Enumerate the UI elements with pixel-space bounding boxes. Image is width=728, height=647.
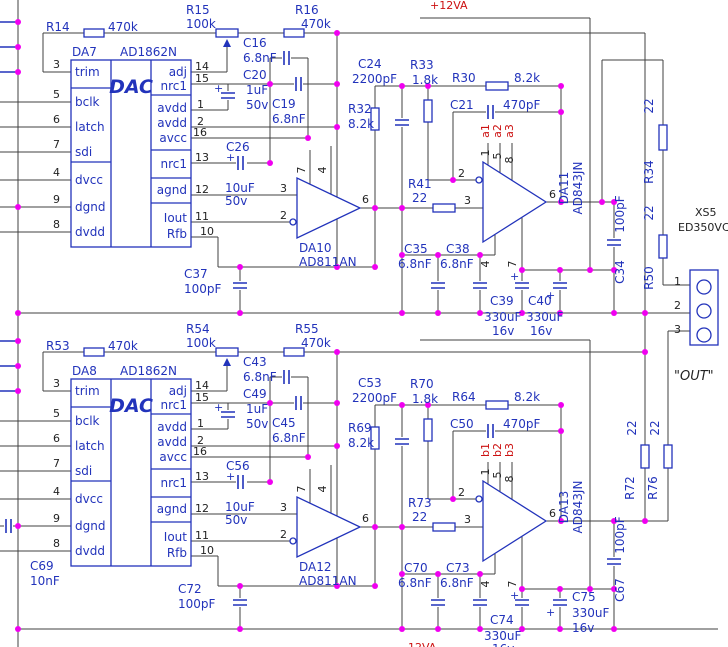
da8-pin-trim: trim xyxy=(75,384,100,398)
da10-num-6: 6 xyxy=(362,193,369,206)
da8-pin-nrc1a: nrc1 xyxy=(160,398,187,412)
r32-value: 8.2k xyxy=(348,117,374,131)
c34-ref: C34 xyxy=(613,260,627,284)
da7-num-4: 4 xyxy=(53,166,60,179)
r64-ref: R64 xyxy=(452,390,476,404)
r14-ref: R14 xyxy=(46,20,70,34)
c19-value: 6.8nF xyxy=(272,112,306,126)
da8-pin-sdi: sdi xyxy=(75,464,92,478)
c43-ref: C43 xyxy=(243,355,267,369)
da8-pin-adj: adj xyxy=(169,384,187,398)
r14-value: 470k xyxy=(108,20,138,34)
da8-num-10: 10 xyxy=(200,544,214,557)
da8-pin-iout: Iout xyxy=(164,530,187,544)
da12-num-4: 4 xyxy=(316,486,329,493)
c21-ref: C21 xyxy=(450,98,474,112)
c75-polarity: + xyxy=(546,606,555,619)
da7-num-12: 12 xyxy=(195,183,209,196)
da7-pin-rfb: Rfb xyxy=(167,227,187,241)
c39-polarity: + xyxy=(510,270,519,283)
da10-num-2: 2 xyxy=(280,209,287,222)
c50-value: 470pF xyxy=(503,417,541,431)
da12-num-6: 6 xyxy=(362,512,369,525)
c37-ref: C37 xyxy=(184,267,208,281)
da7-pin-trim: trim xyxy=(75,65,100,79)
da11-inverting-bubble xyxy=(476,177,482,183)
da12-num-7: 7 xyxy=(295,486,308,493)
r72-ref: R72 xyxy=(623,476,637,500)
c39-ref: C39 xyxy=(490,294,514,308)
da13-triangle xyxy=(483,481,546,561)
opamp-da10 xyxy=(290,178,360,238)
da12-num-3: 3 xyxy=(280,501,287,514)
c39-value2: 16v xyxy=(492,324,514,338)
da13-num-4: 4 xyxy=(479,581,492,588)
c75-value: 330uF xyxy=(572,606,610,620)
da12-ref: DA12 xyxy=(299,560,332,574)
da11-num-7: 7 xyxy=(506,261,519,268)
r76-body xyxy=(664,445,672,468)
c19-ref: C19 xyxy=(272,97,296,111)
da13-ref: DA13 xyxy=(557,491,571,524)
c70-value: 6.8nF xyxy=(398,576,432,590)
da8-num-3: 3 xyxy=(53,377,60,390)
da11-num-8: 8 xyxy=(503,157,516,164)
r30-value: 8.2k xyxy=(514,71,540,85)
da11-tag-a3: a3 xyxy=(503,124,516,138)
r54-ref: R54 xyxy=(186,322,210,336)
da7-pin-sdi: sdi xyxy=(75,145,92,159)
da8-pin-agnd: agnd xyxy=(157,502,187,516)
c74-ref: C74 xyxy=(490,613,514,627)
xs5-pin1-circle xyxy=(697,280,711,294)
r53-body xyxy=(84,348,104,356)
r50-value: 22 xyxy=(642,205,656,220)
da8-num-1: 1 xyxy=(197,417,204,430)
power-label-neg: -12VA xyxy=(404,641,437,647)
c53-ref: C53 xyxy=(358,376,382,390)
c49-polarity: + xyxy=(214,401,223,414)
c56-value: 10uF xyxy=(225,500,255,514)
da13-num-3: 3 xyxy=(464,513,471,526)
da8-num-12: 12 xyxy=(195,502,209,515)
da11-ref: DA11 xyxy=(557,172,571,205)
xs5-num-3: 3 xyxy=(674,323,681,336)
da7-num-10: 10 xyxy=(200,225,214,238)
power-label-pos: +12VA xyxy=(430,0,468,12)
da10-ref: DA10 xyxy=(299,241,332,255)
opamp-da11 xyxy=(476,162,546,242)
da10-num-7: 7 xyxy=(295,167,308,174)
r50-ref: R50 xyxy=(642,266,656,290)
r76-ref: R76 xyxy=(646,476,660,500)
opamp-da12 xyxy=(290,497,360,557)
r73-ref: R73 xyxy=(408,496,432,510)
c73-ref: C73 xyxy=(446,561,470,575)
da13-num-2: 2 xyxy=(458,486,465,499)
da8-num-9: 9 xyxy=(53,512,60,525)
c26-value: 10uF xyxy=(225,181,255,195)
da7-pin-dvcc: dvcc xyxy=(75,173,103,187)
r34-body xyxy=(659,125,667,150)
opamp-da13 xyxy=(476,481,546,561)
r30-body xyxy=(486,82,508,90)
da8-type: DAC xyxy=(109,395,153,417)
da10-num-3: 3 xyxy=(280,182,287,195)
r16-value: 470k xyxy=(301,17,331,31)
da8-pin-bclk: bclk xyxy=(75,414,100,428)
c49-value: 1uF xyxy=(246,402,268,416)
da11-part: AD843JN xyxy=(571,162,585,215)
da7-pin-avdd1: avdd xyxy=(157,101,187,115)
r72-value: 22 xyxy=(625,420,639,435)
da12-num-2: 2 xyxy=(280,528,287,541)
c20-polarity: + xyxy=(214,82,223,95)
r16-ref: R16 xyxy=(295,3,319,17)
r34-ref: R34 xyxy=(642,160,656,184)
xs5-ref: XS5 xyxy=(695,206,717,219)
r54-body xyxy=(216,348,238,356)
da8-pin-avdd1: avdd xyxy=(157,420,187,434)
r33-value: 1.8k xyxy=(412,73,438,87)
da13-part: AD843JN xyxy=(571,481,585,534)
da7-num-15: 15 xyxy=(195,72,209,85)
r72-body xyxy=(641,445,649,468)
schematic-page: DAC DAC xyxy=(0,0,728,647)
da7-num-7: 7 xyxy=(53,138,60,151)
r41-ref: R41 xyxy=(408,177,432,191)
c26-polarity: + xyxy=(226,151,235,164)
r33-body xyxy=(424,100,432,122)
r53-value: 470k xyxy=(108,339,138,353)
da8-pin-dgnd: dgnd xyxy=(75,519,105,533)
da13-tag-b3: b3 xyxy=(503,443,516,457)
da7-num-3: 3 xyxy=(53,58,60,71)
da8-pin-avdd2: avdd xyxy=(157,435,187,449)
r15-value: 100k xyxy=(186,17,216,31)
da7-pin-nrc1a: nrc1 xyxy=(160,79,187,93)
da7-pin-avcc: avcc xyxy=(159,131,187,145)
c40-value: 330uF xyxy=(526,310,564,324)
c20-value: 1uF xyxy=(246,83,268,97)
r55-value: 470k xyxy=(301,336,331,350)
c67-ref: C67 xyxy=(613,578,627,602)
da8-num-8: 8 xyxy=(53,537,60,550)
da7-num-1: 1 xyxy=(197,98,204,111)
c38-value: 6.8nF xyxy=(440,257,474,271)
da10-triangle xyxy=(297,178,360,238)
da11-triangle xyxy=(483,162,546,242)
da8-num-16: 16 xyxy=(193,445,207,458)
da8-pin-rfb: Rfb xyxy=(167,546,187,560)
da7-num-11: 11 xyxy=(195,210,209,223)
c39-value: 330uF xyxy=(484,310,522,324)
c38-ref: C38 xyxy=(446,242,470,256)
da8-num-5: 5 xyxy=(53,407,60,420)
r32-ref: R32 xyxy=(348,102,372,116)
da7-num-8: 8 xyxy=(53,218,60,231)
da7-pin-agnd: agnd xyxy=(157,183,187,197)
r64-value: 8.2k xyxy=(514,390,540,404)
da12-triangle xyxy=(297,497,360,557)
c24-value: 2200pF xyxy=(352,72,397,86)
r34-value: 22 xyxy=(642,98,656,113)
c35-value: 6.8nF xyxy=(398,257,432,271)
r64-body xyxy=(486,401,508,409)
c56-polarity: + xyxy=(226,470,235,483)
da8-pin-nrc1b: nrc1 xyxy=(160,476,187,490)
da8-pin-avcc: avcc xyxy=(159,450,187,464)
r15-ref: R15 xyxy=(186,3,210,17)
xs5-num-2: 2 xyxy=(674,299,681,312)
da7-pin-avdd2: avdd xyxy=(157,116,187,130)
r30-ref: R30 xyxy=(452,71,476,85)
c74-polarity: + xyxy=(510,589,519,602)
r55-ref: R55 xyxy=(295,322,319,336)
c21-value: 470pF xyxy=(503,98,541,112)
da8-num-6: 6 xyxy=(53,432,60,445)
r54-wiper-arrow xyxy=(223,358,231,366)
da7-pin-adj: adj xyxy=(169,65,187,79)
da13-num-7: 7 xyxy=(506,581,519,588)
c74-value: 330uF xyxy=(484,629,522,643)
c73-value: 6.8nF xyxy=(440,576,474,590)
r76-value: 22 xyxy=(648,420,662,435)
da8-num-15: 15 xyxy=(195,391,209,404)
da7-num-16: 16 xyxy=(193,126,207,139)
c75-value2: 16v xyxy=(572,621,594,635)
r41-body xyxy=(433,204,455,212)
r69-value: 8.2k xyxy=(348,436,374,450)
r15-body xyxy=(216,29,238,37)
da8-num-4: 4 xyxy=(53,485,60,498)
r73-value: 22 xyxy=(412,510,427,524)
da8-pin-dvcc: dvcc xyxy=(75,492,103,506)
c16-ref: C16 xyxy=(243,36,267,50)
c34-value: 100pF xyxy=(613,195,627,233)
r14-body xyxy=(84,29,104,37)
c50-ref: C50 xyxy=(450,417,474,431)
c72-ref: C72 xyxy=(178,582,202,596)
da11-num-3: 3 xyxy=(464,194,471,207)
r53-ref: R53 xyxy=(46,339,70,353)
c20-ref: C20 xyxy=(243,68,267,82)
c72-value: 100pF xyxy=(178,597,216,611)
c40-value2: 16v xyxy=(530,324,552,338)
c45-value: 6.8nF xyxy=(272,431,306,445)
r69-ref: R69 xyxy=(348,421,372,435)
r50-body xyxy=(659,235,667,258)
xs5-part: ED350VC xyxy=(678,221,728,234)
c26-value2: 50v xyxy=(225,194,247,208)
dac-output-schematic: DAC DAC xyxy=(0,0,728,647)
r73-body xyxy=(433,523,455,531)
da7-pin-iout: Iout xyxy=(164,211,187,225)
c56-value2: 50v xyxy=(225,513,247,527)
c67-value: 100pF xyxy=(613,516,627,554)
da12-part: AD811AN xyxy=(299,574,357,588)
da8-num-11: 11 xyxy=(195,529,209,542)
da7-pin-nrc1b: nrc1 xyxy=(160,157,187,171)
da12-inverting-bubble xyxy=(290,538,296,544)
c45-ref: C45 xyxy=(272,416,296,430)
da8-ref: DA8 xyxy=(72,364,97,378)
c49-ref: C49 xyxy=(243,387,267,401)
xs5-num-1: 1 xyxy=(674,275,681,288)
r70-body xyxy=(424,419,432,441)
r15-wiper-arrow xyxy=(223,39,231,47)
connector-xs5 xyxy=(690,270,718,345)
da8-num-13: 13 xyxy=(195,470,209,483)
c37-value: 100pF xyxy=(184,282,222,296)
da7-num-13: 13 xyxy=(195,151,209,164)
da7-num-9: 9 xyxy=(53,193,60,206)
r41-value: 22 xyxy=(412,191,427,205)
c40-ref: C40 xyxy=(528,294,552,308)
da7-pin-latch: latch xyxy=(75,120,105,134)
da11-num-2: 2 xyxy=(458,167,465,180)
c35-ref: C35 xyxy=(404,242,428,256)
xs5-pin2-circle xyxy=(697,304,711,318)
da7-pin-dvdd: dvdd xyxy=(75,225,105,239)
da7-part: AD1862N xyxy=(120,45,177,59)
da13-num-6: 6 xyxy=(549,507,556,520)
c69-value: 10nF xyxy=(30,574,60,588)
da11-num-6: 6 xyxy=(549,188,556,201)
da13-num-8: 8 xyxy=(503,476,516,483)
da8-part: AD1862N xyxy=(120,364,177,378)
da8-pin-latch: latch xyxy=(75,439,105,453)
da10-inverting-bubble xyxy=(290,219,296,225)
c16-value: 6.8nF xyxy=(243,51,277,65)
r70-value: 1.8k xyxy=(412,392,438,406)
da7-pin-dgnd: dgnd xyxy=(75,200,105,214)
c70-ref: C70 xyxy=(404,561,428,575)
r54-value: 100k xyxy=(186,336,216,350)
r33-ref: R33 xyxy=(410,58,434,72)
da10-num-4: 4 xyxy=(316,167,329,174)
c75-ref: C75 xyxy=(572,590,596,604)
da8-num-7: 7 xyxy=(53,457,60,470)
r70-ref: R70 xyxy=(410,377,434,391)
da7-num-6: 6 xyxy=(53,113,60,126)
c49-value2: 50v xyxy=(246,417,268,431)
c74-value2: 16v xyxy=(492,642,514,647)
c24-ref: C24 xyxy=(358,57,382,71)
c43-value: 6.8nF xyxy=(243,370,277,384)
da7-num-5: 5 xyxy=(53,88,60,101)
da8-pin-dvdd: dvdd xyxy=(75,544,105,558)
da7-ref: DA7 xyxy=(72,45,97,59)
da7-type: DAC xyxy=(109,76,153,98)
da11-num-4: 4 xyxy=(479,261,492,268)
out-label: "OUT" xyxy=(674,369,714,384)
xs5-pin3-circle xyxy=(697,328,711,342)
da7-pin-bclk: bclk xyxy=(75,95,100,109)
c20-value2: 50v xyxy=(246,98,268,112)
c69-ref: C69 xyxy=(30,559,54,573)
da13-inverting-bubble xyxy=(476,496,482,502)
c53-value: 2200pF xyxy=(352,391,397,405)
da10-part: AD811AN xyxy=(299,255,357,269)
